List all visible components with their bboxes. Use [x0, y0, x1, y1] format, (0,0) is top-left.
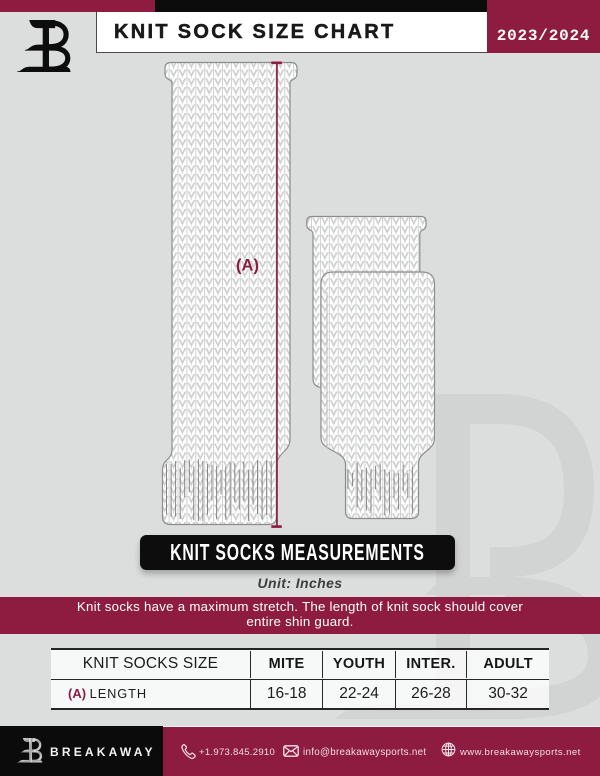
svg-text:(A): (A) [236, 257, 259, 275]
